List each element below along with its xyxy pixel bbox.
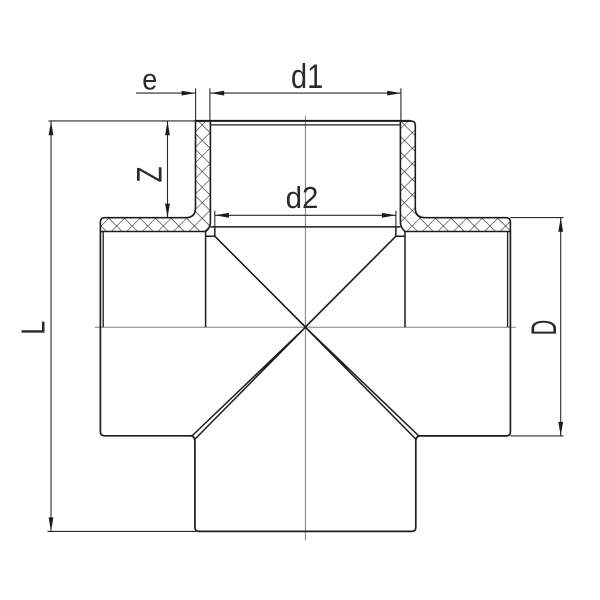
svg-text:Z: Z [130,166,170,182]
svg-text:d1: d1 [291,57,323,96]
svg-text:D: D [526,320,564,336]
svg-text:e: e [142,63,157,97]
svg-text:L: L [16,321,52,335]
svg-text:d2: d2 [286,181,319,215]
